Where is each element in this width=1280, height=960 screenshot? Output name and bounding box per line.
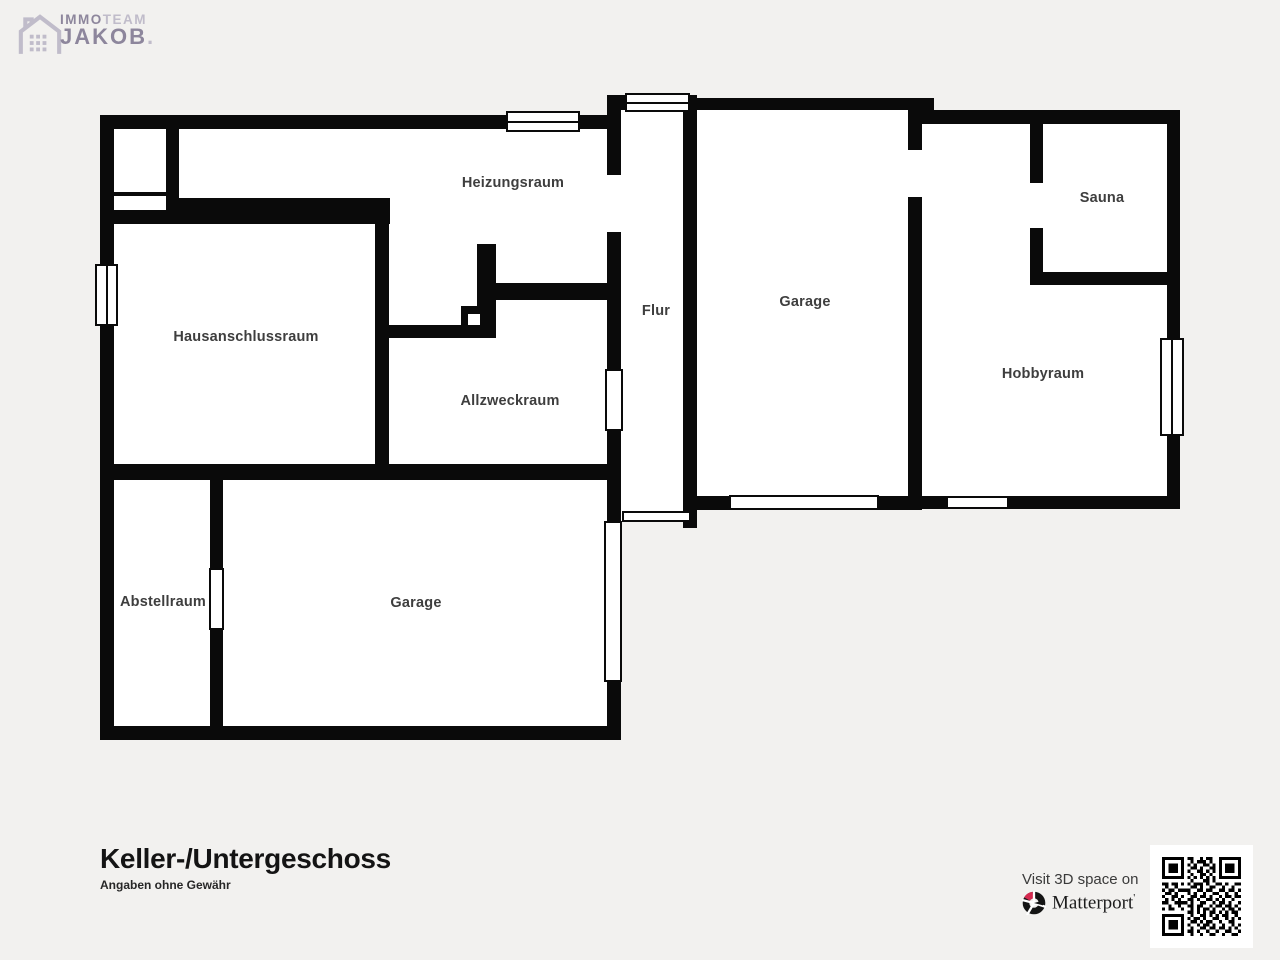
matterport-logo: Matterport': [1022, 891, 1135, 915]
wall: [697, 98, 922, 110]
door-opening: [605, 369, 623, 431]
room-label-flur: Flur: [642, 303, 670, 319]
room-label-heizungsraum: Heizungsraum: [462, 175, 564, 191]
wall: [375, 198, 389, 480]
matterport-icon: [1022, 891, 1046, 915]
wall: [1030, 272, 1180, 285]
wall: [100, 726, 621, 740]
garage-door-opening: [729, 495, 879, 510]
floorplan-page: { "logo": { "immo": "IMMO", "team": "TEA…: [0, 0, 1280, 960]
wall: [1167, 110, 1180, 509]
door-opening: [114, 196, 166, 210]
qr-code: [1150, 845, 1253, 948]
room-label-allzweckraum: Allzweckraum: [460, 393, 559, 409]
floor-plan: Heizungsraum Hausanschlussraum Allzweckr…: [0, 0, 1280, 960]
wall: [922, 110, 1180, 124]
visit-3d-text: Visit 3D space on: [1022, 871, 1138, 888]
window-symbol: [625, 93, 690, 112]
wall: [683, 95, 697, 528]
window-symbol: [506, 111, 580, 132]
matterport-wordmark: Matterport': [1052, 892, 1135, 914]
door-opening: [209, 568, 224, 630]
wall: [494, 283, 607, 300]
room-label-hobbyraum: Hobbyraum: [1002, 366, 1084, 382]
door-opening: [607, 175, 621, 232]
page-title: Keller-/Untergeschoss: [100, 843, 391, 875]
window-symbol: [95, 264, 118, 326]
room-area-right-block: [908, 110, 1180, 509]
disclaimer-text: Angaben ohne Gewähr: [100, 878, 231, 892]
room-label-garage-top: Garage: [779, 294, 830, 310]
room-label-abstellraum: Abstellraum: [120, 594, 206, 610]
door-opening: [908, 150, 922, 197]
room-label-garage-bottom: Garage: [390, 595, 441, 611]
qr-code-image: [1162, 857, 1241, 936]
door-opening: [1030, 183, 1043, 228]
window-symbol: [1160, 338, 1184, 436]
room-label-sauna: Sauna: [1080, 190, 1125, 206]
wall: [389, 325, 496, 338]
garage-door-opening: [604, 521, 622, 682]
door-opening: [622, 511, 691, 522]
door-opening: [946, 496, 1009, 509]
trademark-tick: ': [1133, 892, 1135, 904]
wall: [100, 464, 607, 480]
room-label-hausanschlussraum: Hausanschlussraum: [173, 329, 318, 345]
